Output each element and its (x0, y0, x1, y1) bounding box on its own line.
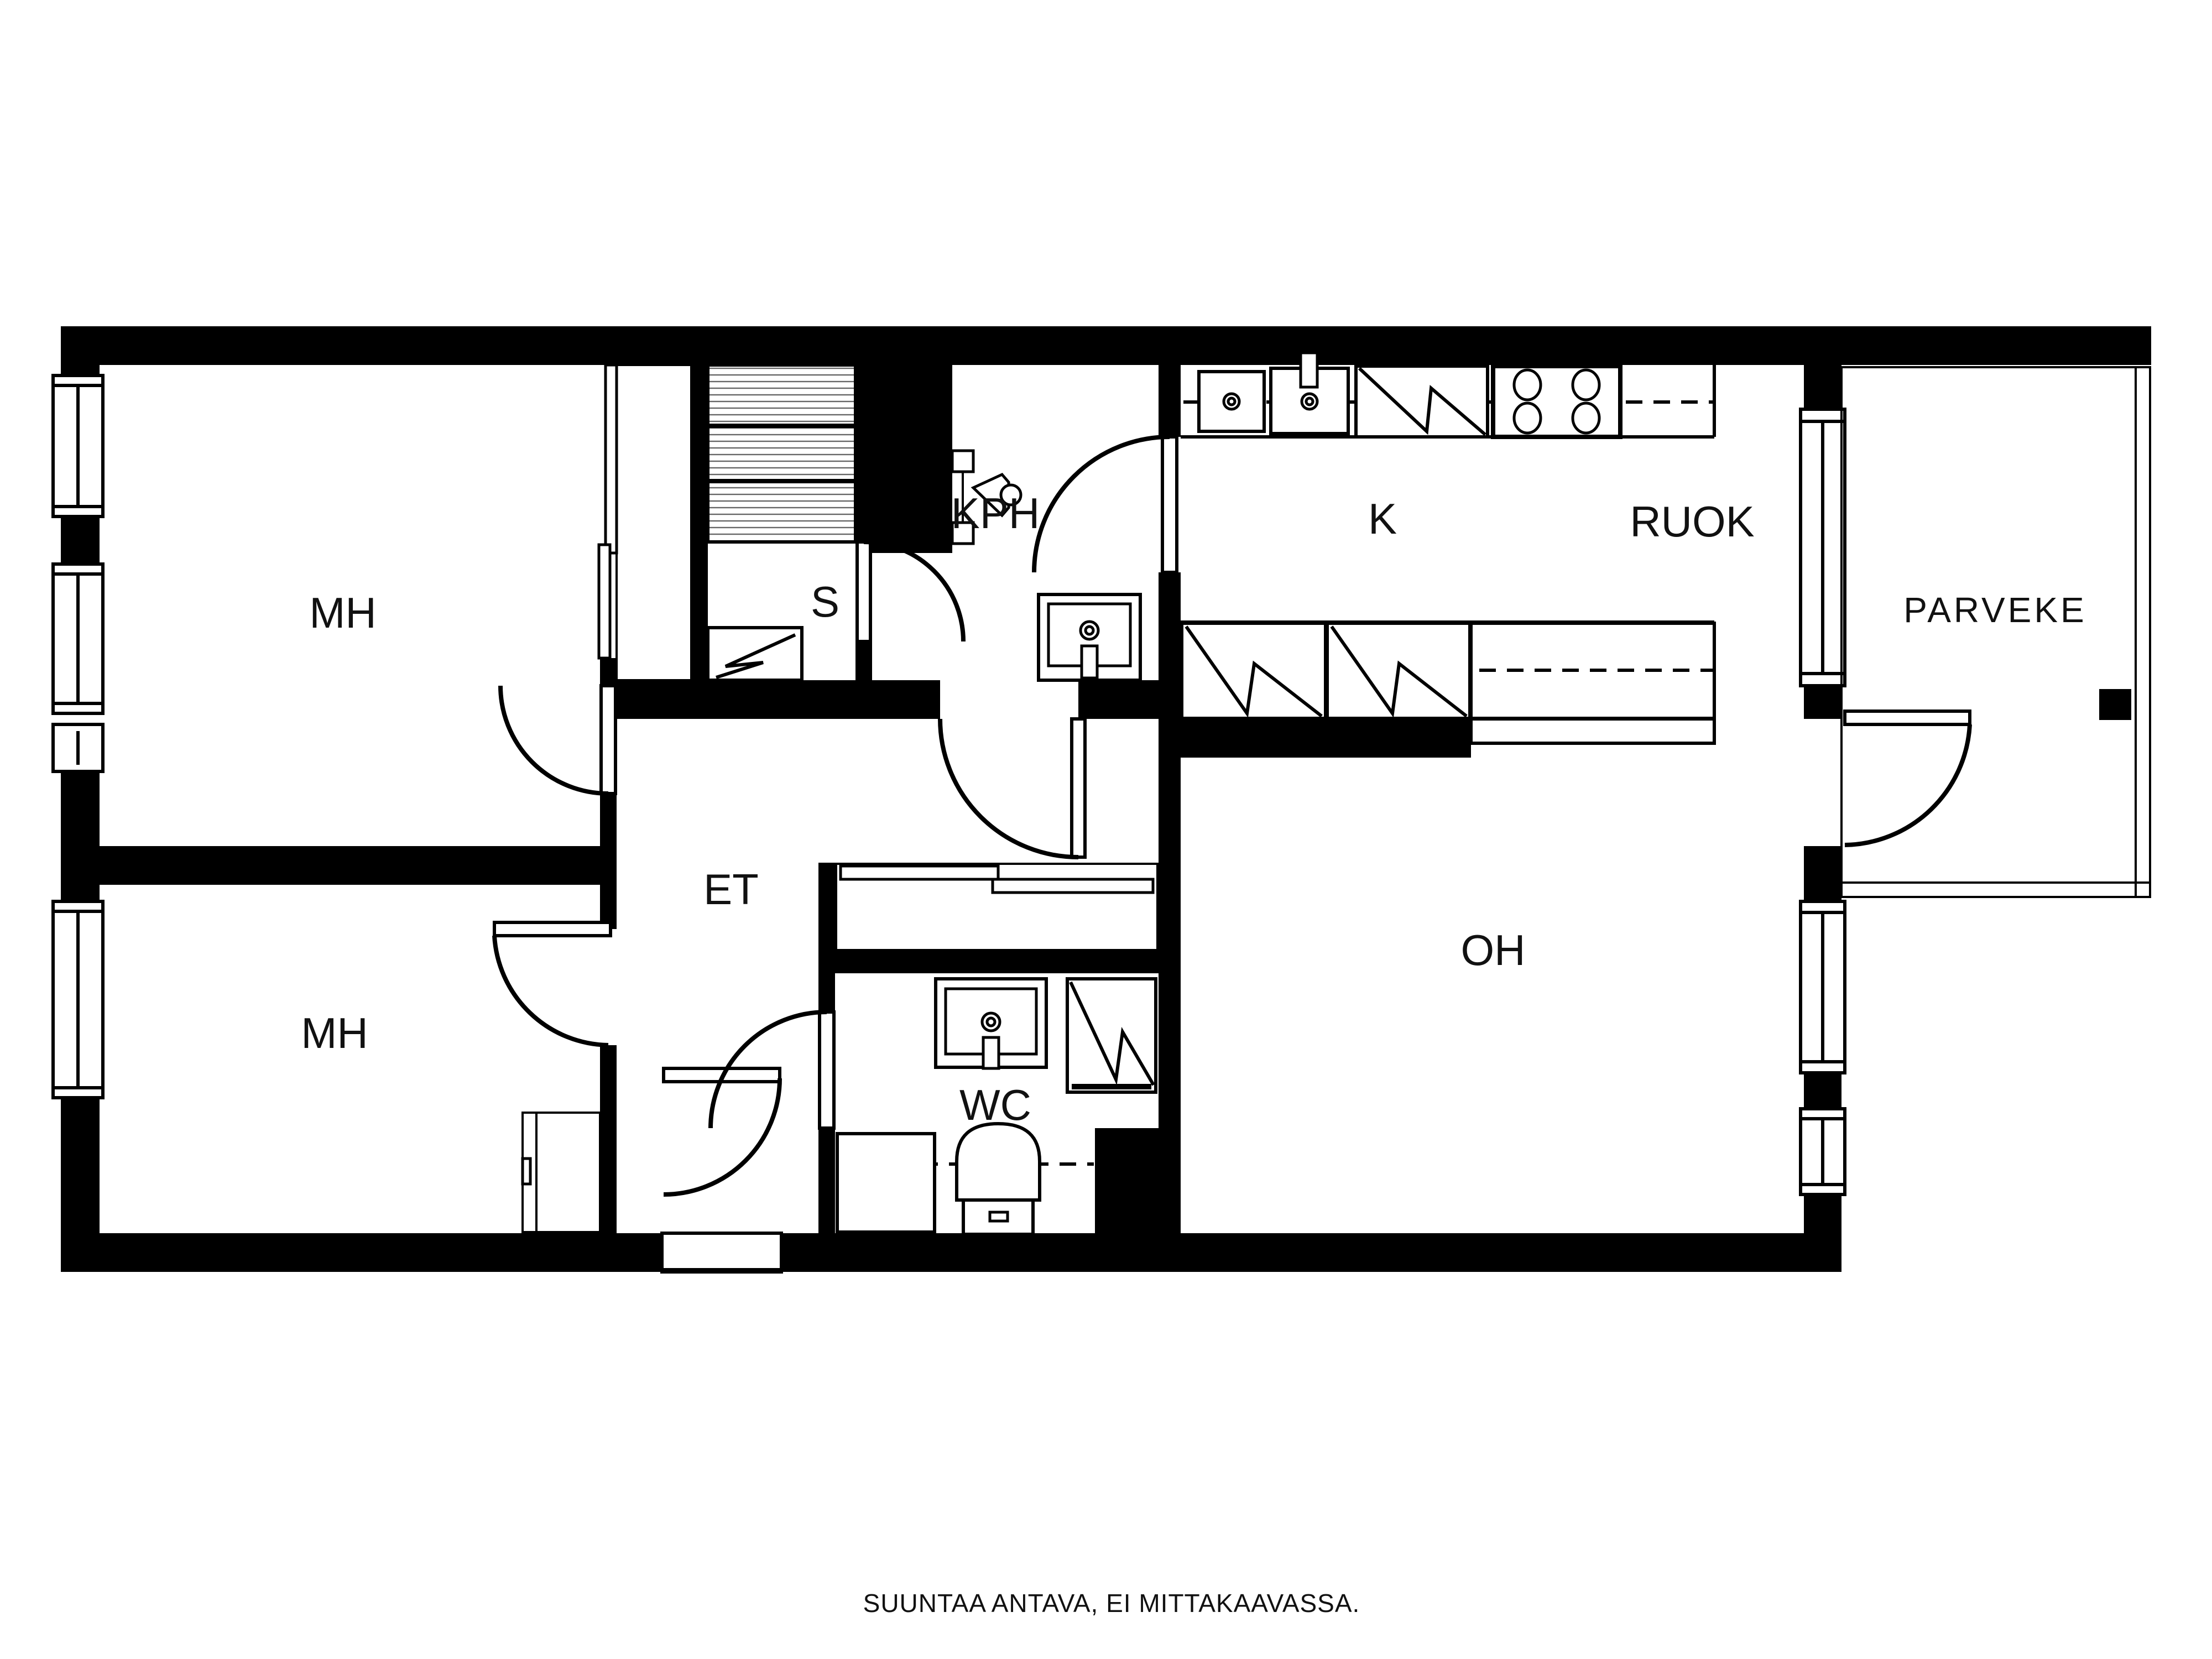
wall-wc-living (1159, 572, 1181, 1233)
window-dining (1801, 409, 1845, 686)
wall-sauna-kph (855, 365, 872, 542)
wall-kph-bottom (600, 680, 940, 719)
toilet-seat (957, 1124, 1040, 1234)
wall-kph-kitchen (1159, 365, 1181, 437)
wall-right (1804, 365, 1841, 409)
fridge (1182, 623, 1326, 718)
kitchen-lower-counter-base (1471, 719, 1714, 743)
wall-right (1804, 686, 1841, 719)
room-label-sauna: S (811, 577, 839, 626)
wall-mh-divider (61, 846, 617, 885)
wc-counter (837, 1134, 935, 1232)
sauna-benches (708, 365, 855, 542)
stove-4-burners (1493, 366, 1620, 437)
window-mh-top-transom (53, 724, 103, 771)
disclaimer-note: SUUNTAA ANTAVA, EI MITTAKAAVASSA. (863, 1589, 1360, 1618)
window-living-1 (1801, 901, 1845, 1073)
washing-machine (1067, 979, 1156, 1092)
wall-exterior-left (61, 517, 100, 564)
wall-mh-right (600, 794, 617, 929)
bathroom-sink (1039, 594, 1140, 680)
wall-closet-wc (818, 951, 1159, 973)
wall-et-wc (818, 973, 835, 1012)
wall-right (1804, 1073, 1841, 1109)
room-label-toilet: WC (959, 1081, 1031, 1129)
floor-plan-canvas: MH MH S KPH K RUOK PARVEKE ET WC OH SUUN… (0, 0, 2212, 1659)
wall-sauna-kph (855, 641, 872, 680)
wc-shaft-block (1095, 1128, 1159, 1233)
window-mh-top-2 (53, 564, 103, 713)
room-label-dining: RUOK (1630, 497, 1754, 546)
freezer (1327, 623, 1470, 718)
floor-plan-page: MH MH S KPH K RUOK PARVEKE ET WC OH SUUN… (0, 0, 2212, 1659)
room-label-balcony: PARVEKE (1903, 590, 2086, 630)
wall-sauna-left (691, 365, 708, 680)
room-label-mh-bottom: MH (301, 1009, 368, 1057)
window-living-2 (1801, 1109, 1845, 1194)
room-label-bathroom: KPH (951, 489, 1040, 538)
wall-exterior-bottom (61, 1233, 1841, 1272)
wall-exterior-top (61, 326, 2151, 365)
sauna-shower (708, 628, 802, 680)
wall-mh-right (600, 1045, 617, 1233)
room-label-mh-top: MH (309, 588, 376, 637)
wall-right (1804, 846, 1841, 901)
window-mh-bottom (53, 901, 103, 1098)
window-mh-top-1 (53, 375, 103, 517)
wall-right (1804, 1194, 1841, 1272)
room-label-living: OH (1461, 926, 1526, 974)
room-label-hallway: ET (703, 865, 759, 914)
balcony-drain (2099, 689, 2131, 720)
kitchen-faucet (1301, 353, 1317, 387)
wall-kitchen-lower (1181, 719, 1471, 758)
duct-block (872, 365, 952, 553)
wall-et-wc (818, 1128, 835, 1233)
page-background (0, 0, 2212, 1659)
dishwasher (1356, 366, 1488, 437)
room-label-kitchen: K (1368, 494, 1397, 543)
wall-exterior-left (61, 326, 100, 375)
wc-sink (936, 979, 1046, 1068)
